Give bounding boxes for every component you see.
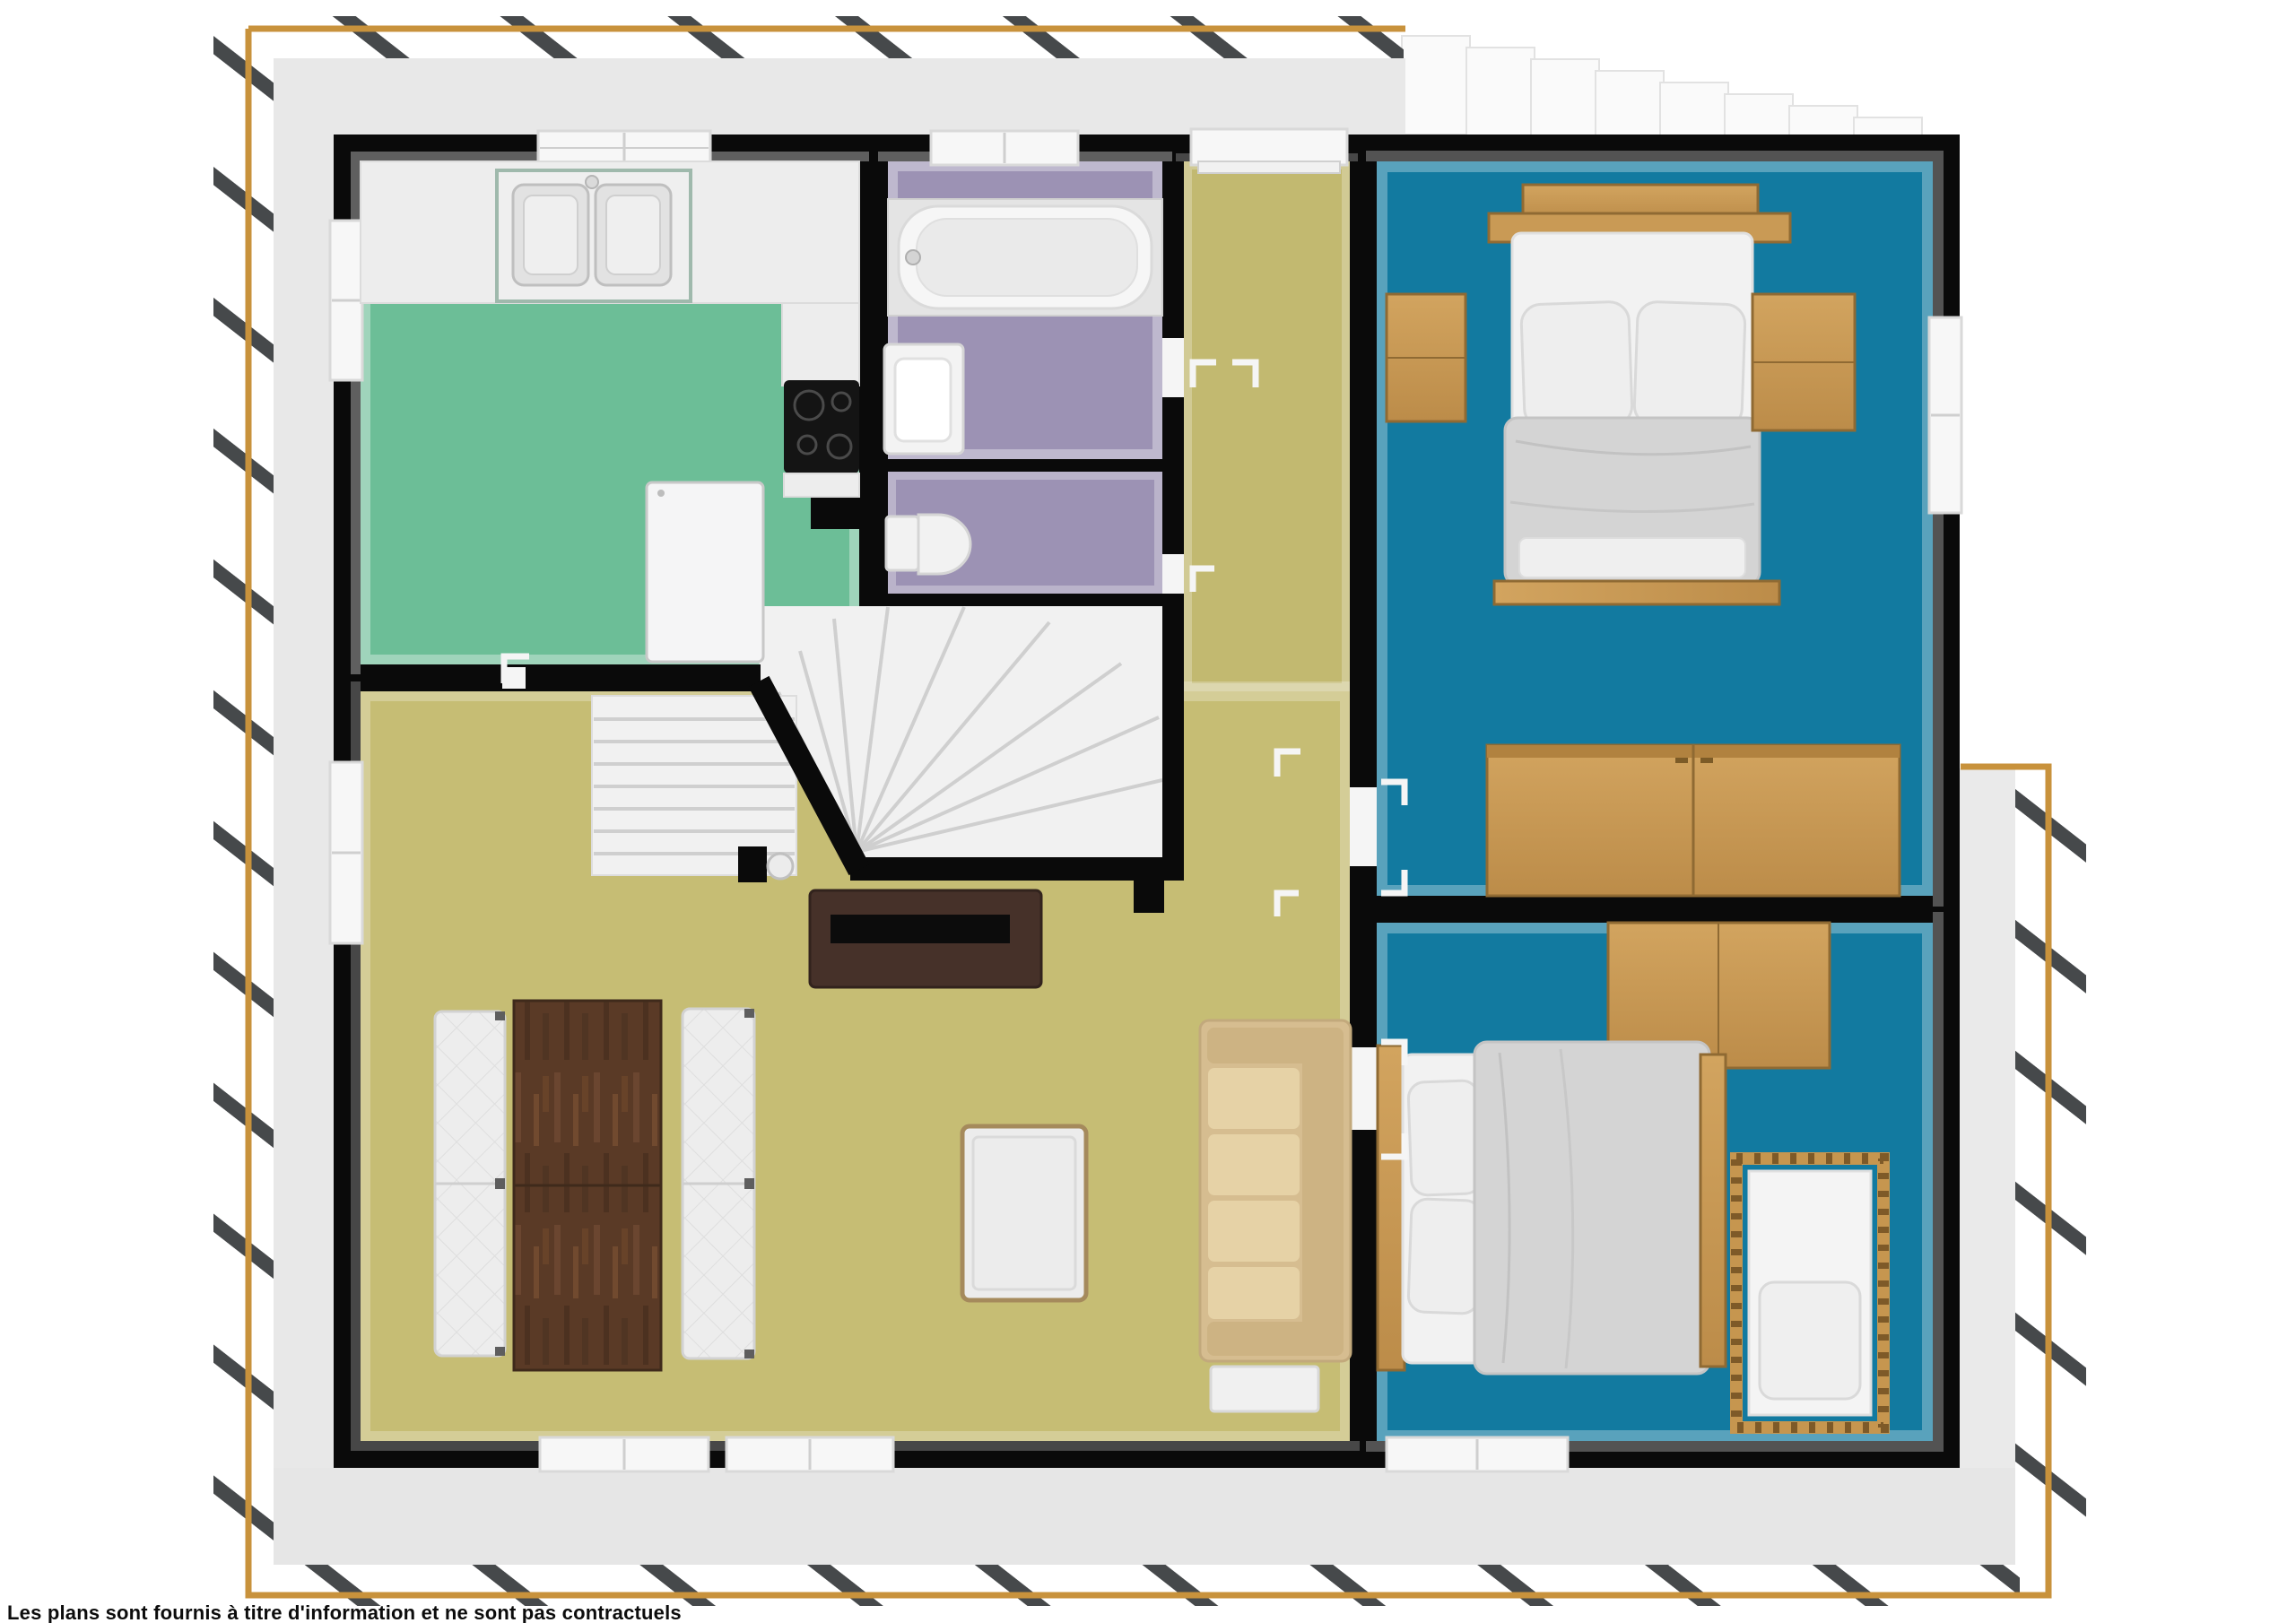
kitchen-counter-right	[782, 303, 859, 386]
bathtub-faucet	[906, 250, 920, 265]
bed-2-headboard	[1378, 1046, 1405, 1370]
bed-2-pillow-top	[1408, 1081, 1482, 1196]
washbasin	[884, 344, 963, 454]
kitchen-sink	[497, 170, 691, 301]
bed-2-duvet	[1474, 1042, 1709, 1374]
cooktop	[784, 380, 859, 473]
hallway-entry-door	[1191, 129, 1347, 173]
toilet-tank	[886, 516, 918, 570]
floor-plan-screenshot: Les plans sont fournis à titre d'informa…	[0, 0, 2296, 1623]
bed-1-pillow-left	[1521, 301, 1633, 429]
bedroom-2-bottom-window	[1387, 1437, 1568, 1471]
toilet-bowl	[918, 515, 970, 574]
bench-right	[683, 1009, 754, 1358]
bench-left	[435, 1011, 505, 1356]
nightstand-right	[1752, 294, 1855, 430]
bathroom-skylight-window	[931, 131, 1078, 165]
sofa	[1200, 1020, 1351, 1361]
nightstand-left	[1387, 294, 1465, 421]
bed-2-pillow-bottom	[1408, 1199, 1482, 1315]
living-bottom-window-2	[726, 1437, 893, 1471]
bed-1-footboard	[1494, 581, 1779, 604]
hallway-floor	[1184, 161, 1350, 691]
wardrobe	[1487, 745, 1900, 896]
tv	[831, 915, 1010, 943]
bin	[768, 854, 793, 879]
bedroom-1-right-window	[1929, 317, 1961, 513]
living-left-window	[330, 762, 362, 943]
living-bottom-window-1	[540, 1437, 709, 1471]
tv-stand	[810, 890, 1041, 987]
crib	[1736, 1159, 1883, 1428]
bed-1-sheet-fold	[1519, 538, 1745, 577]
coffee-table	[962, 1126, 1086, 1300]
kitchen-left-window	[330, 221, 362, 380]
wc	[886, 515, 970, 574]
bed-2-footboard	[1700, 1055, 1726, 1367]
sofa-side-tray	[1211, 1367, 1318, 1411]
crib-pillow	[1760, 1282, 1860, 1399]
floor-plan-svg	[0, 0, 2296, 1623]
kitchen-skylight-window	[538, 131, 710, 165]
bed-1-pillow-right	[1634, 301, 1746, 429]
kitchen-cabinet	[784, 473, 859, 497]
fridge	[647, 482, 763, 662]
dining-table	[514, 1001, 661, 1370]
disclaimer-text: Les plans sont fournis à titre d'informa…	[7, 1601, 682, 1623]
